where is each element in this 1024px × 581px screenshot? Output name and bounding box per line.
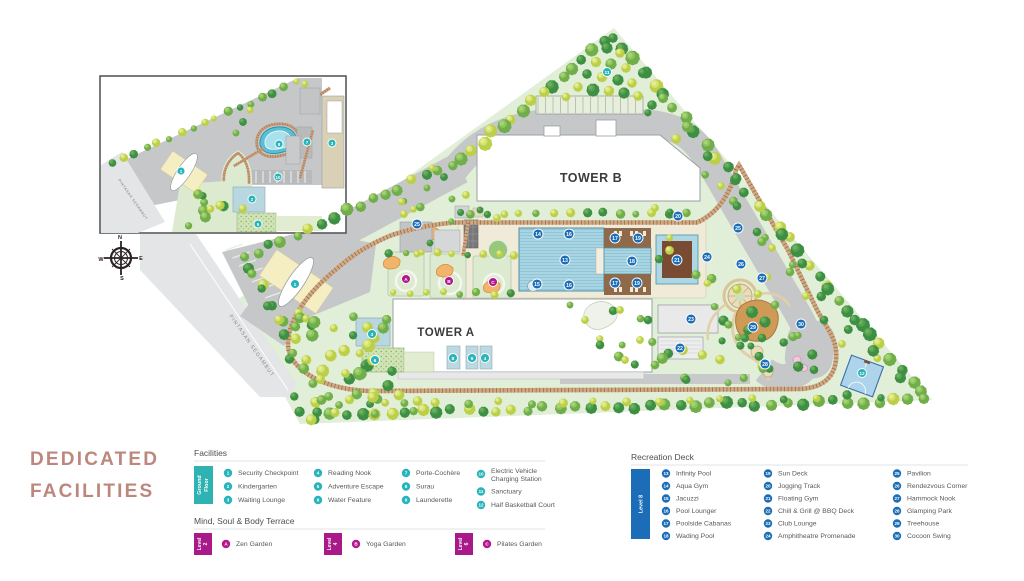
svg-text:B: B [447,279,451,285]
svg-text:Jacuzzi: Jacuzzi [676,496,699,503]
svg-text:20: 20 [675,214,681,220]
svg-text:Floating Gym: Floating Gym [778,496,819,503]
svg-text:4: 4 [317,471,320,476]
svg-text:19: 19 [765,471,771,476]
svg-text:29: 29 [894,521,900,526]
svg-text:11: 11 [604,70,609,76]
svg-text:Pool Lounger: Pool Lounger [676,508,717,515]
svg-text:22: 22 [677,346,683,352]
svg-text:9: 9 [405,498,408,503]
svg-text:Chill & Grill @ BBQ Deck: Chill & Grill @ BBQ Deck [778,508,855,515]
svg-text:A: A [404,277,408,283]
svg-text:8: 8 [452,356,455,362]
svg-text:16: 16 [663,509,669,514]
svg-text:3: 3 [227,498,230,503]
svg-text:25: 25 [735,226,741,232]
svg-text:28: 28 [762,362,768,368]
svg-text:12: 12 [859,371,865,377]
svg-text:5: 5 [317,484,320,489]
svg-text:21: 21 [765,496,771,501]
svg-text:27: 27 [894,496,900,501]
svg-text:4: 4 [484,356,487,362]
svg-text:Adventure Escape: Adventure Escape [328,484,384,491]
svg-text:Charging Station: Charging Station [491,476,542,483]
svg-text:TOWER A: TOWER A [417,327,474,339]
svg-text:Electric Vehicle: Electric Vehicle [491,468,537,475]
svg-text:6: 6 [374,358,377,364]
svg-text:8: 8 [405,484,408,489]
svg-text:TOWER B: TOWER B [560,171,622,185]
svg-text:Club Lounge: Club Lounge [778,521,817,528]
svg-text:Waiting Lounge: Waiting Lounge [238,497,285,504]
svg-text:18: 18 [663,534,669,539]
svg-text:Yoga Garden: Yoga Garden [366,541,406,548]
svg-text:17: 17 [612,281,618,287]
svg-text:Sanctuary: Sanctuary [491,489,522,496]
svg-text:29: 29 [750,325,756,331]
svg-text:Reading Nook: Reading Nook [328,470,372,477]
svg-text:E: E [139,256,143,262]
svg-text:23: 23 [688,317,694,323]
svg-text:W: W [98,257,104,263]
svg-text:25: 25 [414,222,420,228]
svg-text:4: 4 [333,542,339,545]
svg-text:2: 2 [227,484,230,489]
svg-text:Surau: Surau [416,484,434,491]
svg-text:15: 15 [663,496,669,501]
svg-text:Infinity Pool: Infinity Pool [676,471,712,478]
svg-text:Sun Deck: Sun Deck [778,471,808,478]
svg-text:20: 20 [765,484,771,489]
svg-text:Water Feature: Water Feature [328,497,371,504]
svg-text:13: 13 [663,471,669,476]
svg-text:Ground: Ground [197,475,203,494]
svg-text:Launderette: Launderette [416,497,453,504]
svg-text:17: 17 [663,521,669,526]
svg-text:Poolside Cabanas: Poolside Cabanas [676,521,732,528]
svg-text:2: 2 [203,542,209,545]
svg-text:25: 25 [894,471,900,476]
svg-text:FACILITIES: FACILITIES [30,481,154,502]
svg-text:1: 1 [294,282,297,288]
svg-text:Aqua Gym: Aqua Gym [676,483,708,490]
svg-text:S: S [120,276,124,282]
svg-text:14: 14 [535,232,541,238]
svg-text:Pavilion: Pavilion [907,471,931,478]
svg-text:Mind, Soul & Body Terrace: Mind, Soul & Body Terrace [194,516,295,526]
svg-text:C: C [491,280,495,286]
svg-text:7: 7 [405,471,408,476]
svg-text:22: 22 [765,509,771,514]
svg-text:21: 21 [674,258,680,264]
svg-text:24: 24 [765,534,771,539]
svg-text:6: 6 [464,542,470,545]
svg-text:Jogging Track: Jogging Track [778,483,821,490]
svg-text:10: 10 [478,472,484,477]
svg-text:27: 27 [759,276,765,282]
svg-text:Pilates Garden: Pilates Garden [497,541,542,548]
svg-text:3: 3 [371,332,374,338]
svg-text:10: 10 [276,175,281,180]
svg-text:Cocoon Swing: Cocoon Swing [907,533,951,540]
svg-text:Amphitheatre Promenade: Amphitheatre Promenade [778,533,856,540]
svg-text:19: 19 [634,281,640,287]
svg-text:19: 19 [635,236,641,242]
svg-text:Facilities: Facilities [194,448,227,458]
svg-text:Half Basketball Court: Half Basketball Court [491,502,555,509]
svg-text:Wading Pool: Wading Pool [676,533,715,540]
svg-text:12: 12 [478,503,484,508]
svg-text:Rendezvous Corner: Rendezvous Corner [907,483,968,490]
svg-text:Treehouse: Treehouse [907,521,939,528]
svg-text:26: 26 [738,262,744,268]
svg-text:26: 26 [894,484,900,489]
svg-text:Zen Garden: Zen Garden [236,541,272,548]
svg-text:1: 1 [227,471,230,476]
svg-text:Security Checkpoint: Security Checkpoint [238,470,299,477]
svg-text:18: 18 [629,259,635,265]
svg-text:23: 23 [765,521,771,526]
svg-text:16: 16 [566,232,572,238]
svg-text:Level 8: Level 8 [639,495,645,513]
svg-text:17: 17 [612,236,618,242]
svg-text:14: 14 [663,484,669,489]
svg-text:28: 28 [894,509,900,514]
svg-text:30: 30 [798,322,804,328]
svg-text:9: 9 [471,356,474,362]
svg-text:DEDICATED: DEDICATED [30,449,159,470]
svg-text:16: 16 [566,283,572,289]
svg-text:13: 13 [562,258,568,264]
svg-text:24: 24 [704,255,710,261]
svg-text:30: 30 [894,534,900,539]
svg-text:6: 6 [317,498,320,503]
svg-text:Porte-Cochère: Porte-Cochère [416,470,460,477]
svg-text:Kindergarten: Kindergarten [238,484,277,491]
svg-text:Hammock Nook: Hammock Nook [907,496,956,503]
svg-text:N: N [118,235,122,241]
svg-text:15: 15 [534,282,540,288]
svg-text:Recreation Deck: Recreation Deck [631,452,695,462]
svg-text:11: 11 [479,489,484,494]
svg-text:Floor: Floor [204,477,210,491]
svg-text:Glamping Park: Glamping Park [907,508,953,515]
